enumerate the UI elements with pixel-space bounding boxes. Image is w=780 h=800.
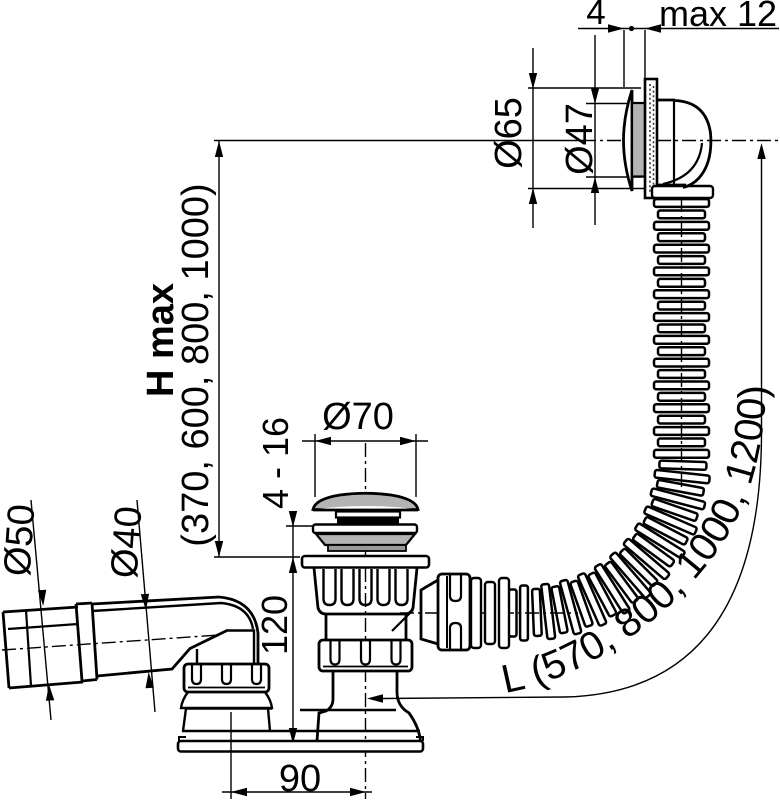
svg-text:120: 120 xyxy=(254,595,295,655)
svg-text:4 - 16: 4 - 16 xyxy=(255,417,296,509)
svg-text:(370, 600, 800, 1000): (370, 600, 800, 1000) xyxy=(175,183,217,546)
svg-text:90: 90 xyxy=(279,758,321,800)
svg-text:4: 4 xyxy=(586,0,605,32)
svg-text:Ø65: Ø65 xyxy=(488,97,530,169)
svg-text:Ø70: Ø70 xyxy=(322,396,394,438)
